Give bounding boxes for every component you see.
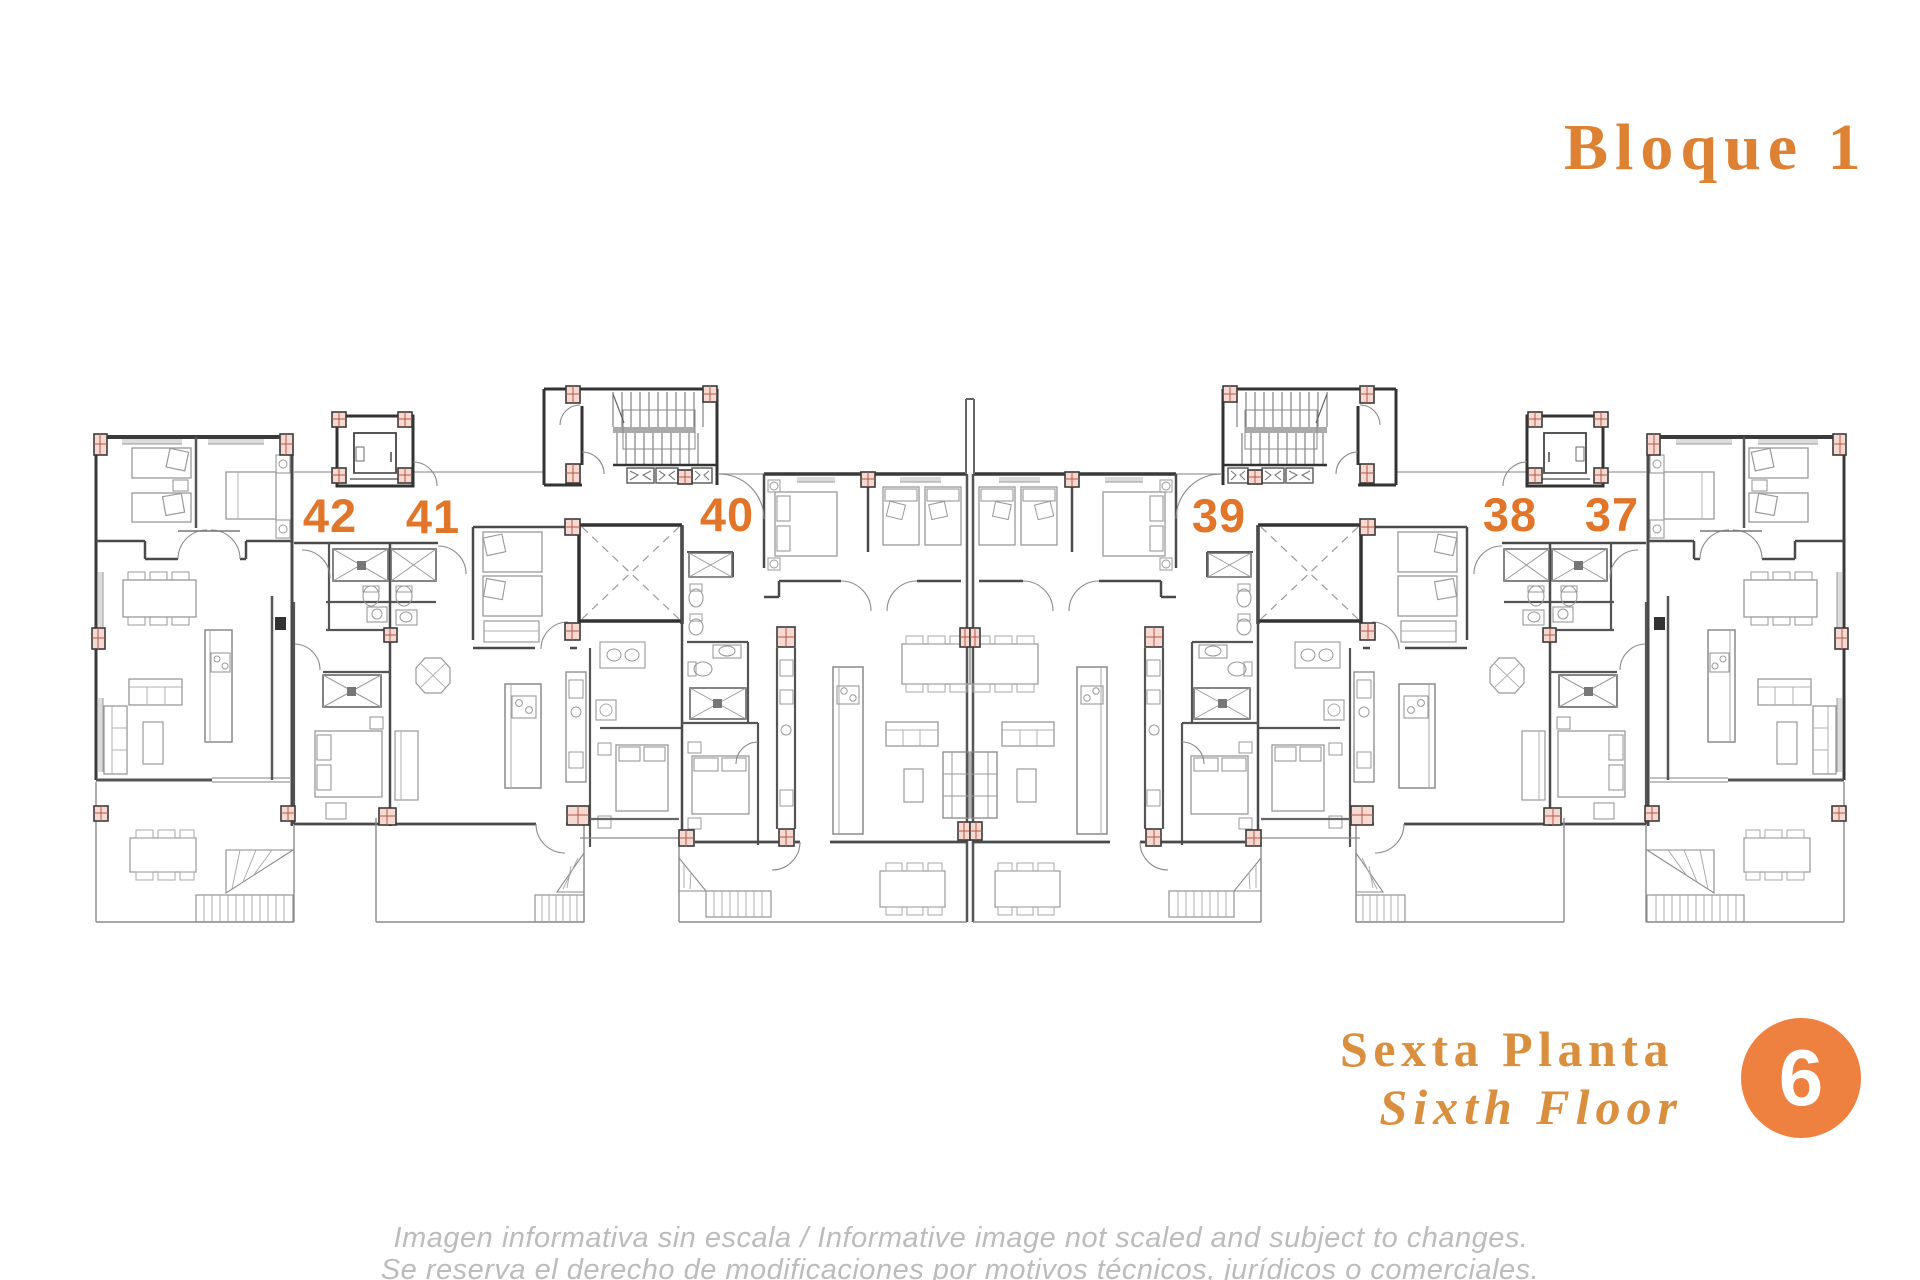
svg-text:42: 42: [303, 489, 357, 542]
svg-text:38: 38: [1483, 488, 1537, 541]
svg-text:Sixth Floor: Sixth Floor: [1379, 1079, 1683, 1135]
svg-text:Sexta Planta: Sexta Planta: [1340, 1021, 1674, 1077]
svg-text:6: 6: [1779, 1033, 1824, 1122]
svg-text:Bloque 1: Bloque 1: [1564, 111, 1868, 184]
svg-text:40: 40: [700, 488, 754, 541]
svg-text:Imagen informativa sin escala: Imagen informativa sin escala / Informat…: [394, 1222, 1529, 1254]
svg-text:41: 41: [406, 490, 460, 543]
svg-text:Se reserva el derecho de modif: Se reserva el derecho de modificaciones …: [381, 1254, 1539, 1280]
svg-text:37: 37: [1585, 488, 1639, 541]
svg-text:39: 39: [1192, 489, 1246, 542]
